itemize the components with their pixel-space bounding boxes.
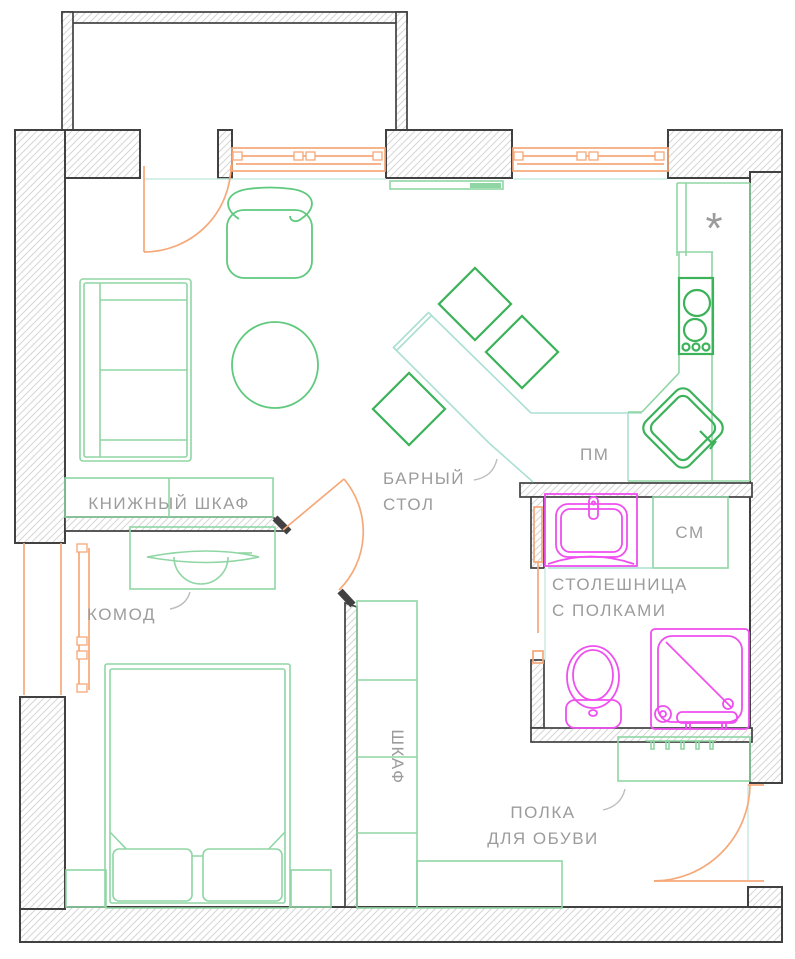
shoe-shelf-label-line1: ПОЛКА xyxy=(510,803,575,822)
balcony-wall-left xyxy=(62,12,73,130)
fridge-asterisk: * xyxy=(705,204,722,253)
bathroom-wall-bottom xyxy=(531,728,752,742)
pillow-left xyxy=(113,849,192,901)
wall-left-upper xyxy=(15,130,65,543)
dresser-label: КОМОД xyxy=(87,605,156,624)
washing-machine-label: СМ xyxy=(675,523,704,542)
floor-plan-page: КНИЖНЫЙ ШКАФ КОМОД БАРНЫЙ СТОЛ ПМ СМ СТО… xyxy=(0,0,795,959)
countertop-label-line2: С ПОЛКАМИ xyxy=(552,601,667,620)
floor-plan-svg: КНИЖНЫЙ ШКАФ КОМОД БАРНЫЙ СТОЛ ПМ СМ СТО… xyxy=(0,0,795,959)
bar-table-label-line1: БАРНЫЙ xyxy=(383,469,465,488)
wall-interior-horizontal xyxy=(65,517,287,531)
bathroom-wall-left-lower xyxy=(531,660,544,728)
balcony-wall-top xyxy=(62,12,407,23)
wardrobe-label: ШКАФ xyxy=(388,729,407,784)
balcony-wall-right xyxy=(396,12,407,130)
shoe-shelf-label-line2: ДЛЯ ОБУВИ xyxy=(487,829,599,848)
wall-bottom xyxy=(20,907,782,942)
wall-interior-vertical xyxy=(345,603,357,907)
dishwasher-label: ПМ xyxy=(580,445,609,464)
wall-pier-b xyxy=(386,130,512,178)
wall-top-right-block xyxy=(668,130,782,178)
bar-table-label-line2: СТОЛ xyxy=(383,495,435,514)
pillow-right xyxy=(203,849,282,901)
countertop-label-line1: СТОЛЕШНИЦА xyxy=(552,575,688,594)
bookcase-label: КНИЖНЫЙ ШКАФ xyxy=(88,494,250,513)
wall-right-upper xyxy=(750,172,782,783)
wall-left-lower xyxy=(20,697,65,909)
wall-pier-a xyxy=(218,130,232,178)
